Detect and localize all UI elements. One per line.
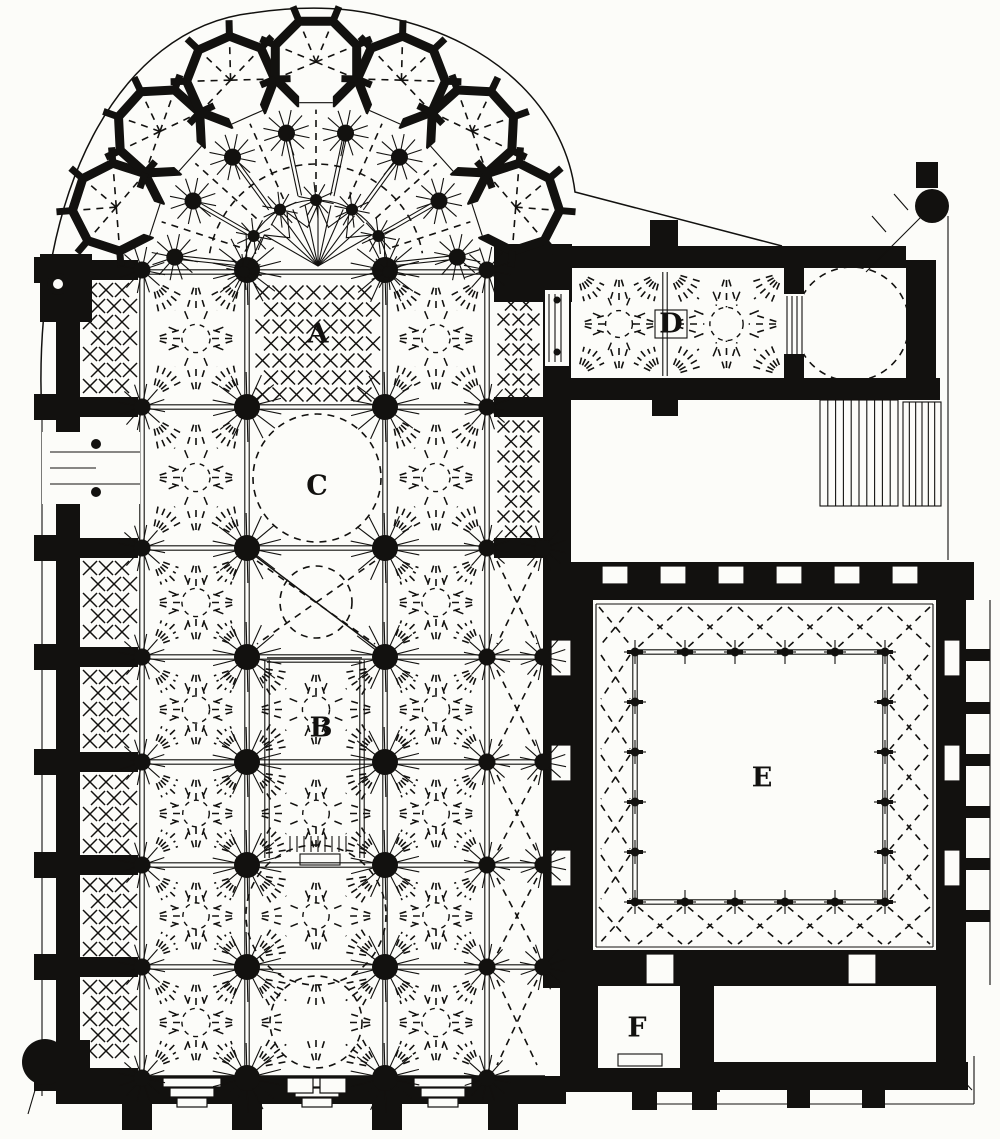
room-label-A: A [307, 319, 330, 350]
room-label-C: C [306, 471, 328, 502]
cathedral-plan-figure: ABCDEF [0, 0, 1000, 1139]
room-label-D: D [659, 309, 682, 340]
floor-plan-engraving: ABCDEF [0, 0, 1000, 1139]
room-label-F: F [627, 1013, 646, 1044]
room-label-E: E [752, 763, 773, 794]
room-label-B: B [310, 713, 333, 744]
